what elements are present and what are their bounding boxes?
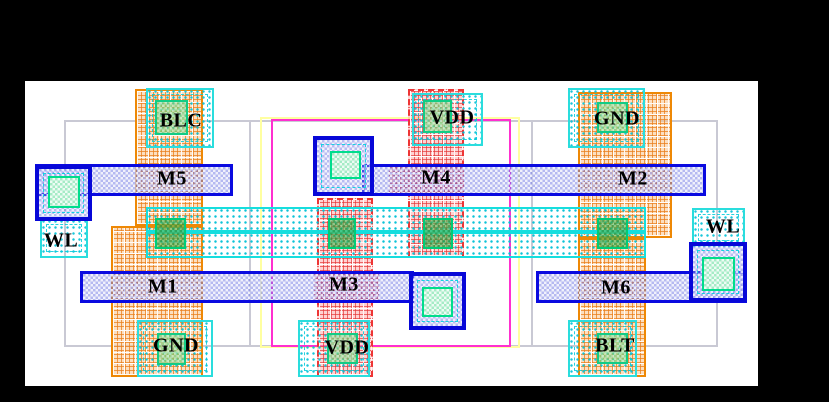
label-gnd-top: GND [594,108,640,131]
figure-root: BLC VDD GND M5 M4 M2 WL WL M1 M3 M6 GND … [0,0,829,402]
contact-node-right [597,218,628,249]
label-m3: M3 [329,274,359,297]
label-m6: M6 [601,277,631,300]
metal-strap-lower [146,232,646,258]
label-vdd-bottom: VDD [325,337,370,360]
poly-gate-m4-m2 [362,164,706,196]
via-wl-right [702,257,735,291]
poly-gate-m1-m3 [80,271,414,303]
contact-node-midright [423,218,453,249]
via-wl-left [48,176,80,208]
label-vdd-top: VDD [430,107,475,130]
label-m5: M5 [157,168,187,191]
label-m2: M2 [618,168,648,191]
label-wl-left: WL [44,230,78,253]
contact-node-left [155,218,186,249]
label-m4: M4 [421,167,451,190]
label-m1: M1 [148,276,178,299]
label-gnd-bottom: GND [153,335,199,358]
layout-canvas: BLC VDD GND M5 M4 M2 WL WL M1 M3 M6 GND … [25,81,758,386]
label-blc: BLC [160,110,203,133]
via-gate-top [330,151,361,179]
label-wl-right: WL [706,216,740,239]
contact-node-midleft [328,218,356,249]
metal-strap-upper [146,207,646,232]
label-blt: BLT [595,335,635,358]
via-gate-bottom [422,287,453,317]
